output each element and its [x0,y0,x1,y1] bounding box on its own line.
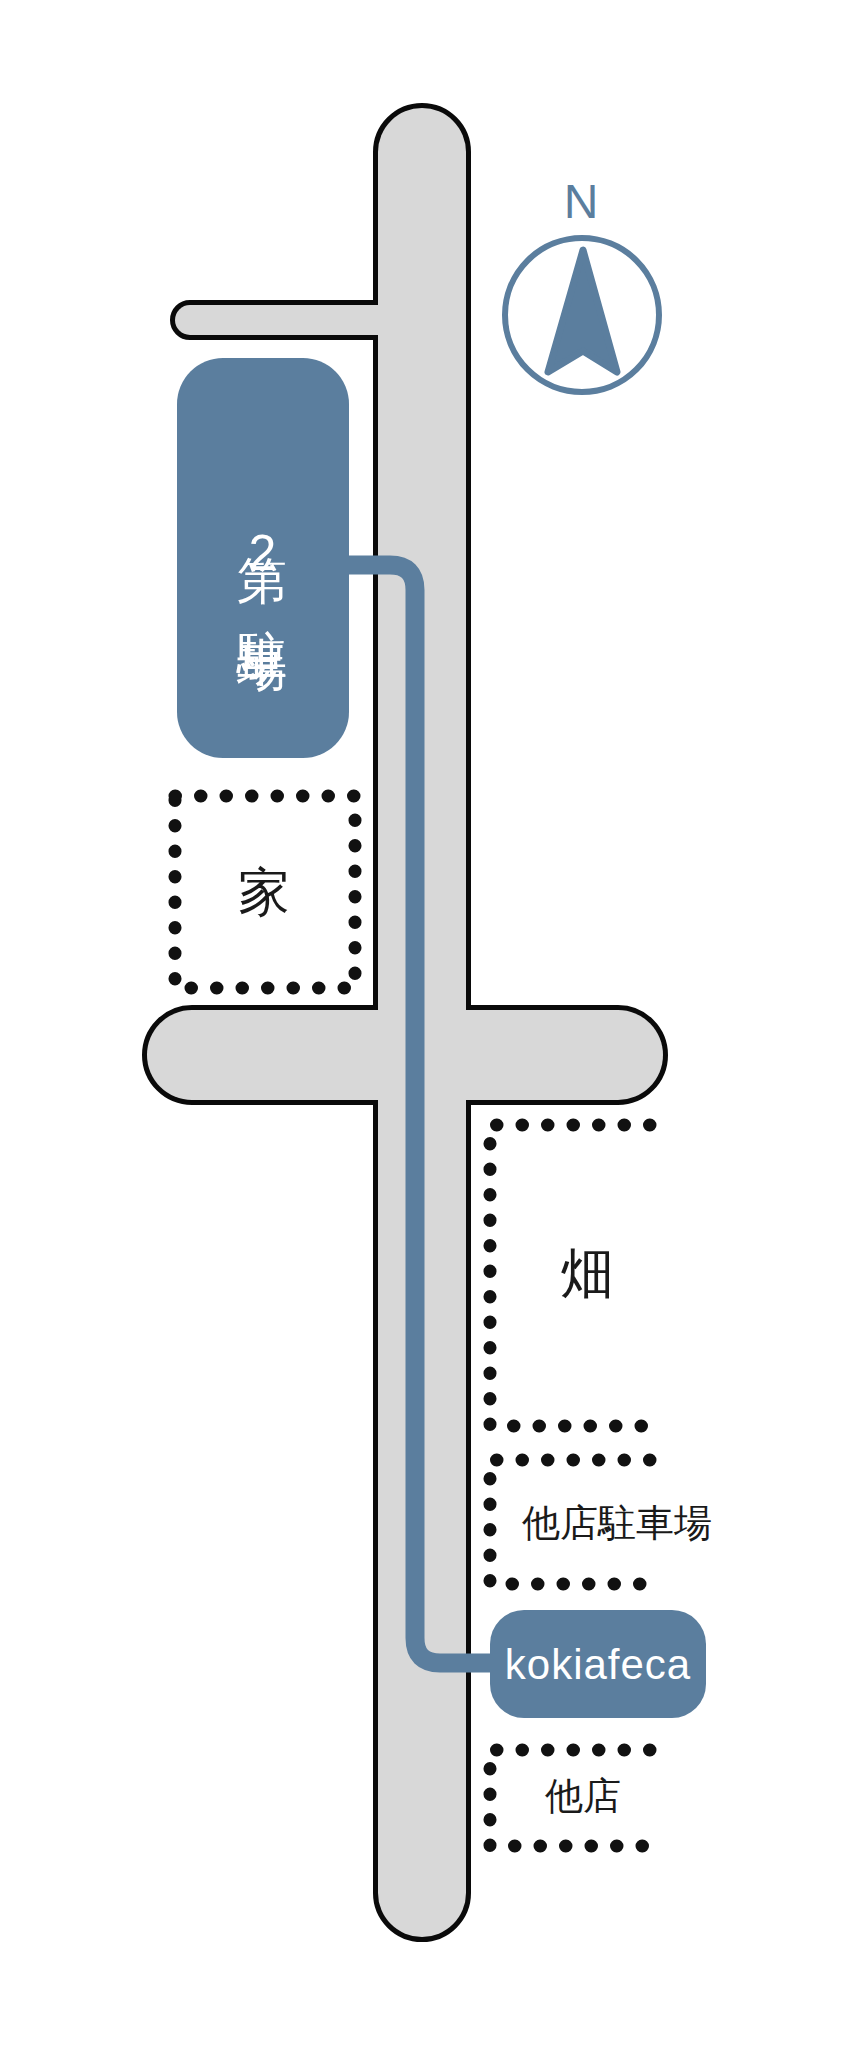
other-store-label: 他店 [545,1771,621,1822]
access-map: N 第2駐車場 家 畑 他店駐車場 kokiafeca 他店 [0,0,847,2048]
branch-road [175,305,405,335]
compass-icon [505,238,659,392]
route-line [345,565,500,1663]
parking-label: 第2駐車場 [230,517,297,613]
north-arrow-icon [548,250,617,372]
field-label: 畑 [560,1238,614,1311]
compass-north-label: N [564,174,599,229]
other-store-parking-label: 他店駐車場 [522,1498,712,1549]
map-graphics [0,0,847,2048]
destination-label: kokiafeca [505,1641,691,1689]
house-label: 家 [238,858,290,928]
